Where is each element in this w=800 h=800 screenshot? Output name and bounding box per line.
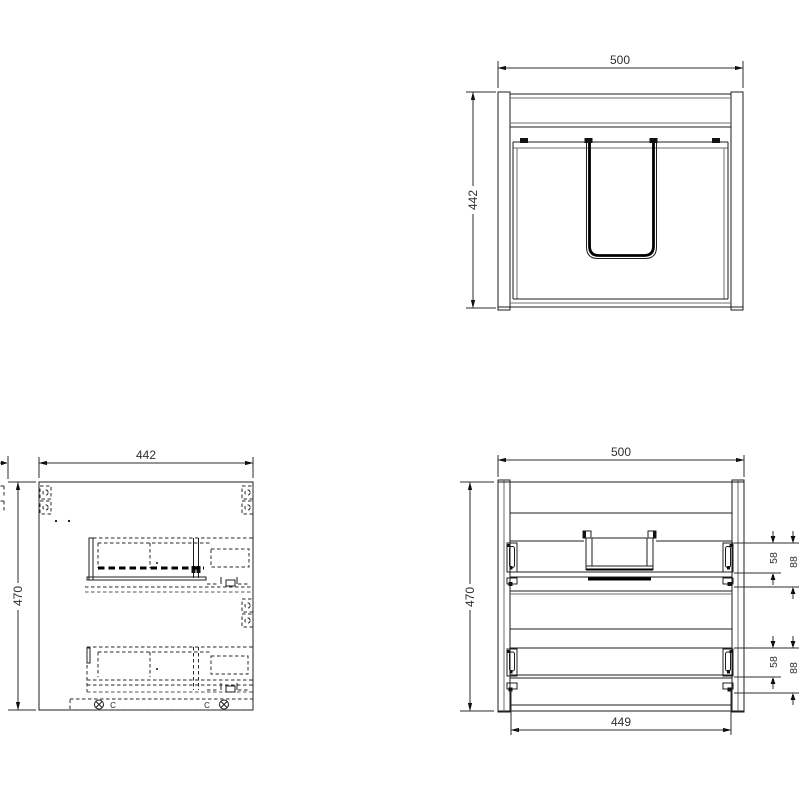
front-view-dim-inner-width: 449: [511, 690, 731, 735]
front-view: 500 470 449 58: [460, 445, 800, 735]
front-view-dim-height: 470: [460, 482, 494, 711]
side-view: C C 442 470: [0, 448, 506, 710]
back-view-carcass: [498, 92, 743, 310]
front-view-inner-width-label: 449: [611, 715, 631, 729]
screw-mark-left: C: [110, 701, 116, 710]
slide-bracket-symbol: [207, 577, 248, 586]
drill-dots: [55, 520, 506, 670]
screw-mark-right: C: [204, 701, 210, 710]
back-view-height-label: 442: [466, 190, 480, 210]
side-view-dim-width: 442: [39, 448, 253, 478]
side-view-dim-height: 470: [8, 482, 36, 710]
bottom-drawer-offset-label: 58: [768, 656, 780, 668]
bottom-rail-hidden: C C: [70, 699, 253, 710]
screw-symbol: [95, 700, 104, 709]
front-view-width-label: 500: [611, 445, 631, 459]
drawing-page: 500 442: [0, 0, 800, 800]
back-view: 500 442: [466, 53, 743, 310]
side-view-height-label: 470: [11, 586, 25, 606]
slide-bracket-symbol: [207, 683, 248, 692]
cropped-dimension-marks: [0, 456, 8, 513]
front-view-height-label: 470: [463, 587, 477, 607]
siphon-cutout: [587, 143, 657, 259]
screw-symbol: [220, 700, 229, 709]
back-view-dim-height: 442: [466, 92, 496, 308]
side-panel-outline: [39, 482, 253, 710]
top-drawer-offset-label: 58: [768, 552, 780, 564]
top-drawer-height-label: 88: [788, 556, 800, 568]
front-view-carcass: [498, 480, 744, 712]
back-view-width-label: 500: [610, 53, 630, 67]
front-view-dim-width: 500: [498, 445, 744, 477]
side-view-width-label: 442: [136, 448, 156, 462]
bottom-drawer-height-label: 88: [788, 662, 800, 674]
cam-fittings: [40, 486, 253, 627]
bottom-drawer-slides: [507, 649, 733, 692]
lower-drawer-hidden: [87, 647, 253, 692]
cabinet-technical-drawing: 500 442: [0, 0, 800, 800]
back-view-dim-width: 500: [498, 53, 743, 88]
upper-drawer-hidden: [85, 538, 253, 592]
